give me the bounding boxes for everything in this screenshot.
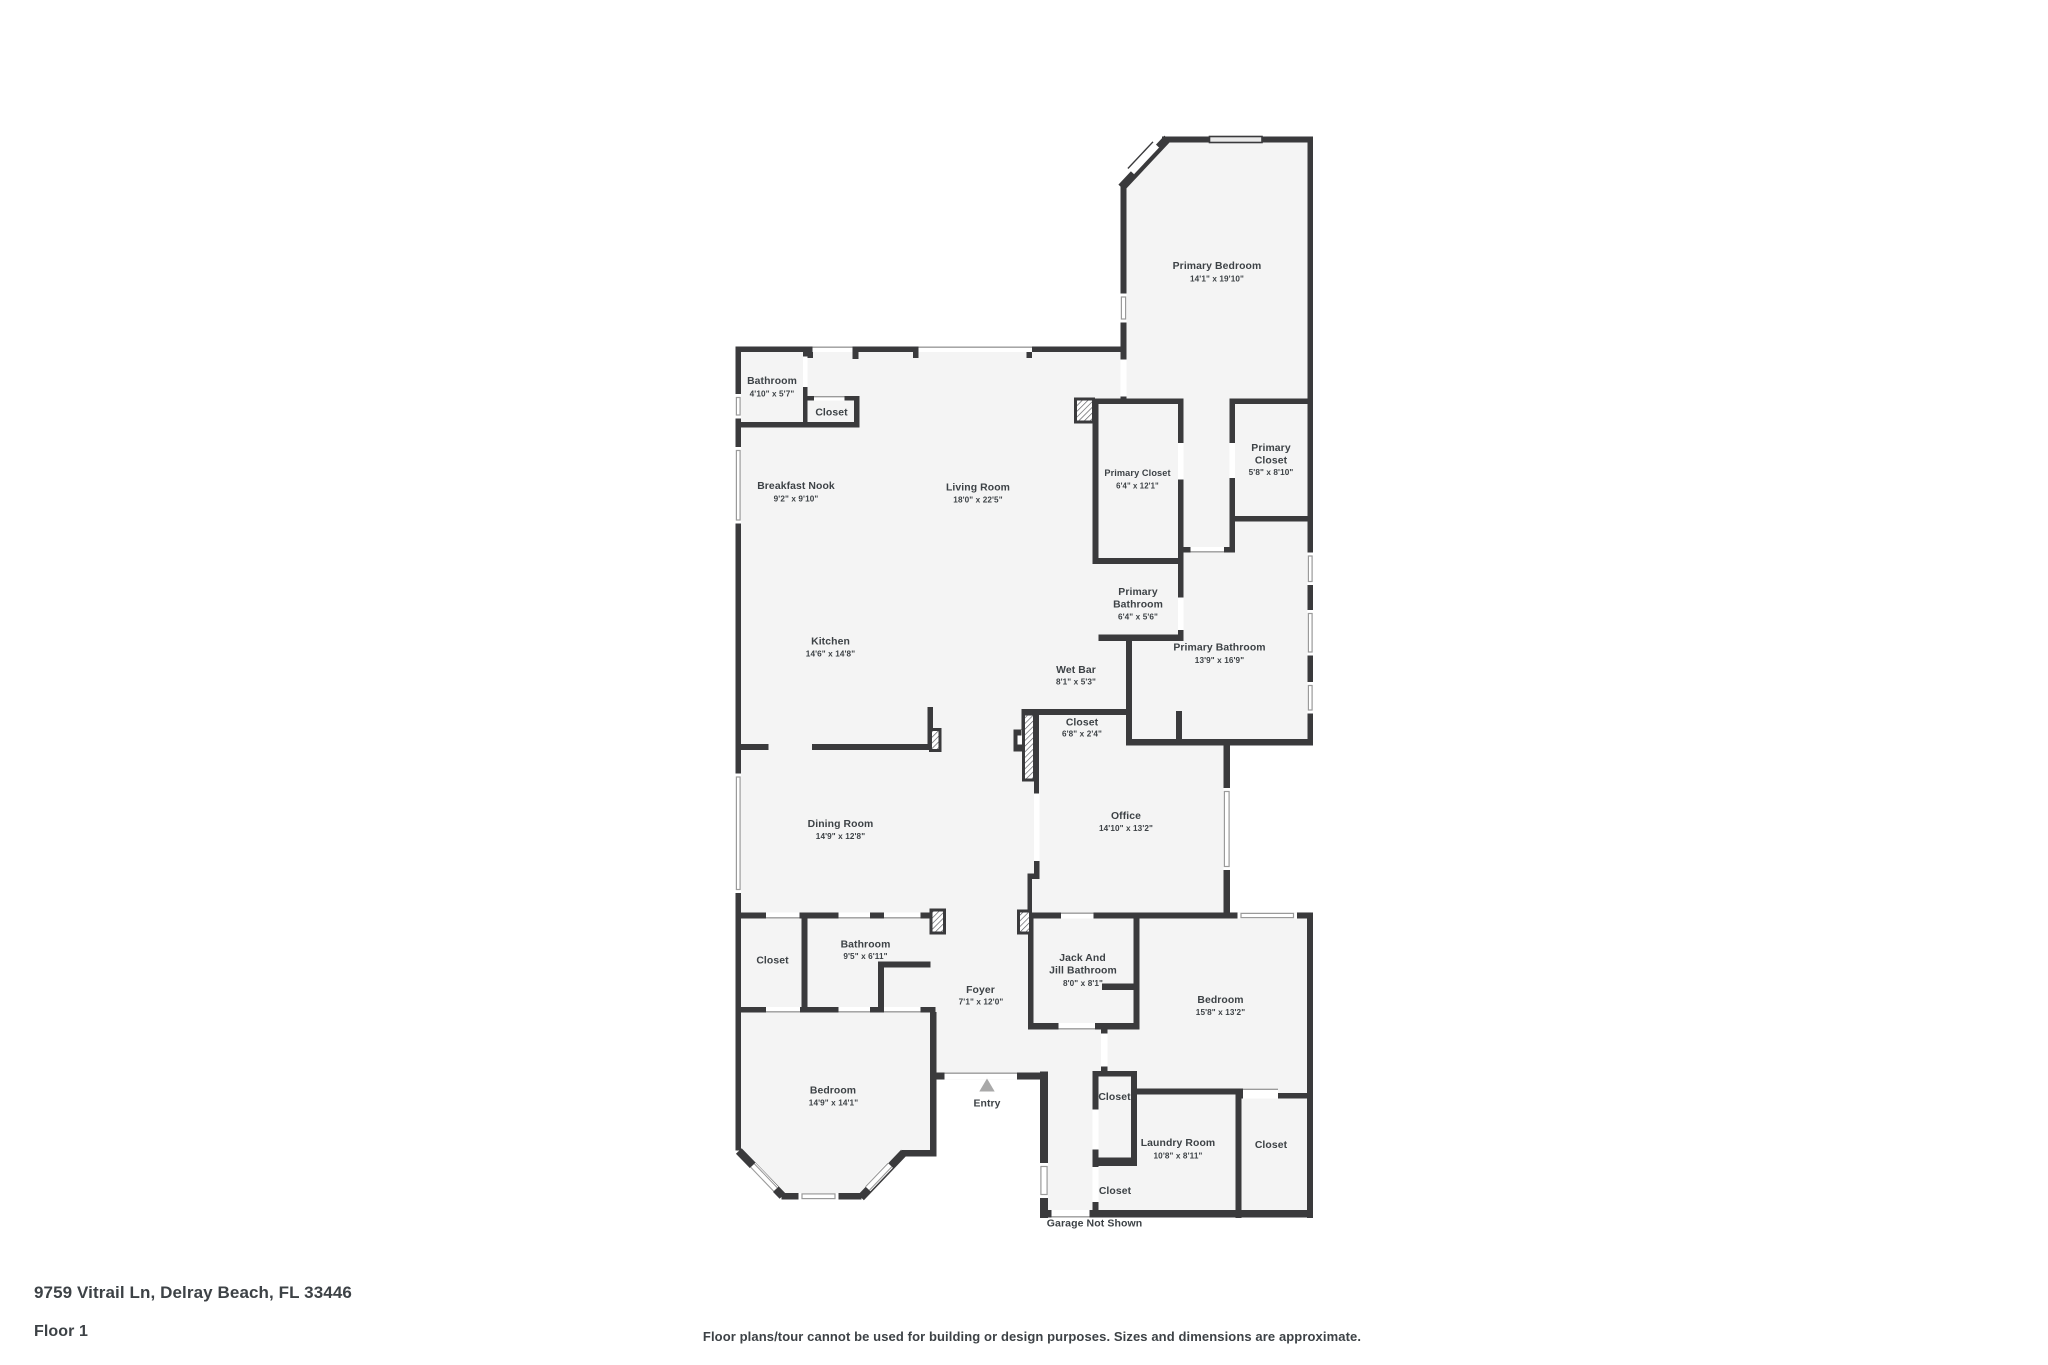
- svg-text:6'4" x 5'6": 6'4" x 5'6": [1118, 613, 1158, 622]
- svg-text:Floor 1: Floor 1: [34, 1323, 88, 1340]
- svg-text:9759 Vitrail Ln, Delray Beach,: 9759 Vitrail Ln, Delray Beach, FL 33446: [34, 1283, 352, 1302]
- svg-text:9'2" x 9'10": 9'2" x 9'10": [774, 495, 819, 504]
- svg-text:4'10" x 5'7": 4'10" x 5'7": [750, 390, 795, 399]
- svg-text:Foyer: Foyer: [966, 985, 995, 996]
- svg-text:14'9" x 14'1": 14'9" x 14'1": [809, 1099, 858, 1108]
- svg-text:6'8" x 2'4": 6'8" x 2'4": [1062, 730, 1102, 739]
- svg-text:Closet: Closet: [1099, 1186, 1132, 1197]
- svg-text:Closet: Closet: [1255, 1140, 1288, 1151]
- svg-text:14'10" x 13'2": 14'10" x 13'2": [1099, 824, 1153, 833]
- svg-text:18'0" x 22'5": 18'0" x 22'5": [953, 496, 1002, 505]
- svg-text:13'9" x 16'9": 13'9" x 16'9": [1195, 656, 1244, 665]
- svg-text:Laundry Room: Laundry Room: [1141, 1138, 1216, 1149]
- svg-text:14'6" x 14'8": 14'6" x 14'8": [806, 650, 855, 659]
- svg-text:Bathroom: Bathroom: [747, 376, 797, 387]
- svg-text:Entry: Entry: [973, 1099, 1000, 1110]
- svg-text:8'0" x 8'1": 8'0" x 8'1": [1063, 979, 1103, 988]
- svg-text:Floor plans/tour cannot be use: Floor plans/tour cannot be used for buil…: [703, 1329, 1361, 1344]
- svg-text:Office: Office: [1111, 811, 1141, 822]
- svg-text:Primary Bedroom: Primary Bedroom: [1173, 261, 1262, 272]
- svg-text:Closet: Closet: [1255, 456, 1288, 467]
- svg-text:Bathroom: Bathroom: [841, 940, 891, 951]
- svg-text:Kitchen: Kitchen: [811, 637, 850, 648]
- svg-text:15'8" x 13'2": 15'8" x 13'2": [1196, 1008, 1245, 1017]
- svg-text:Closet: Closet: [1098, 1092, 1131, 1103]
- svg-text:Wet Bar: Wet Bar: [1056, 665, 1096, 676]
- svg-text:Living Room: Living Room: [946, 483, 1010, 494]
- svg-text:Garage Not Shown: Garage Not Shown: [1047, 1218, 1143, 1230]
- svg-text:6'4" x 12'1": 6'4" x 12'1": [1116, 482, 1159, 491]
- svg-text:7'1" x 12'0": 7'1" x 12'0": [959, 998, 1004, 1007]
- svg-text:Jack And: Jack And: [1059, 953, 1106, 964]
- svg-text:14'1" x 19'10": 14'1" x 19'10": [1190, 275, 1244, 284]
- svg-text:10'8" x 8'11": 10'8" x 8'11": [1154, 1152, 1203, 1161]
- svg-text:Breakfast Nook: Breakfast Nook: [757, 481, 835, 492]
- svg-text:8'1" x 5'3": 8'1" x 5'3": [1056, 678, 1096, 687]
- svg-text:Closet: Closet: [815, 408, 848, 419]
- svg-text:Closet: Closet: [1066, 718, 1099, 729]
- svg-text:14'9" x 12'8": 14'9" x 12'8": [816, 832, 865, 841]
- svg-text:Primary Bathroom: Primary Bathroom: [1173, 643, 1265, 654]
- svg-text:Primary: Primary: [1251, 443, 1291, 454]
- svg-text:9'5" x 6'11": 9'5" x 6'11": [843, 952, 887, 961]
- svg-text:5'8" x 8'10": 5'8" x 8'10": [1249, 468, 1294, 477]
- svg-text:Dining Room: Dining Room: [808, 819, 874, 830]
- svg-text:Closet: Closet: [756, 956, 789, 967]
- svg-text:Jill Bathroom: Jill Bathroom: [1049, 966, 1117, 977]
- svg-text:Primary: Primary: [1118, 587, 1158, 598]
- svg-text:Primary Closet: Primary Closet: [1104, 468, 1170, 478]
- svg-text:Bedroom: Bedroom: [1197, 995, 1243, 1006]
- svg-text:Bedroom: Bedroom: [810, 1086, 856, 1097]
- svg-text:Bathroom: Bathroom: [1113, 600, 1163, 611]
